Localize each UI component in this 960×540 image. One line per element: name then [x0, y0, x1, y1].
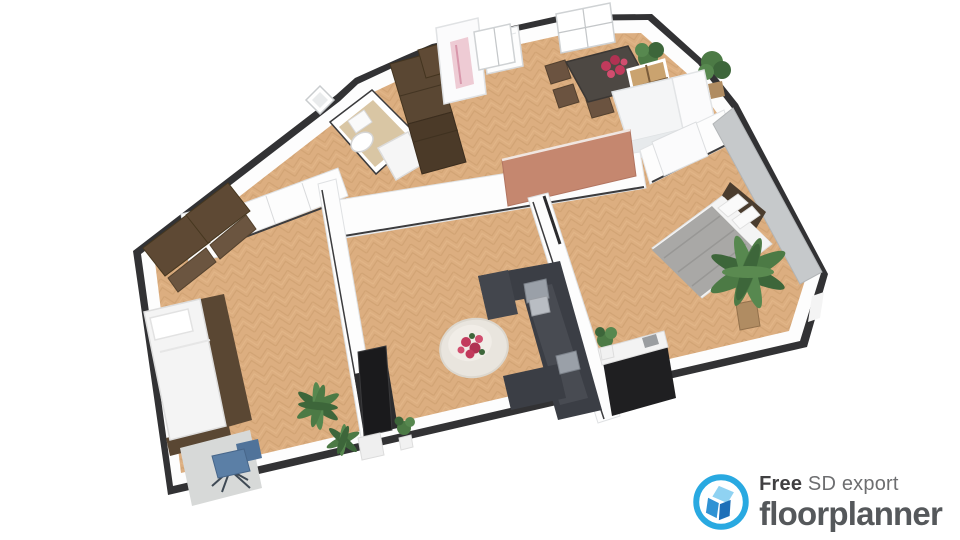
floorplan-export-page: { "watermark": { "free_label": "Free", "…: [0, 0, 960, 540]
tv-stand-base: [358, 433, 384, 460]
free-label: Free: [759, 473, 802, 495]
watermark-text: Free SD export floorplanner: [759, 474, 942, 530]
export-label: SD export: [808, 473, 899, 495]
sofa-pillow-2: [529, 296, 550, 316]
floorplan-render: [0, 0, 960, 540]
floorplanner-watermark: Free SD export floorplanner: [693, 474, 942, 530]
tv-screen: [358, 346, 392, 436]
watermark-line1: Free SD export: [759, 474, 942, 494]
floorplanner-house-icon: [693, 474, 749, 530]
brand-label: floorplanner: [759, 497, 942, 530]
